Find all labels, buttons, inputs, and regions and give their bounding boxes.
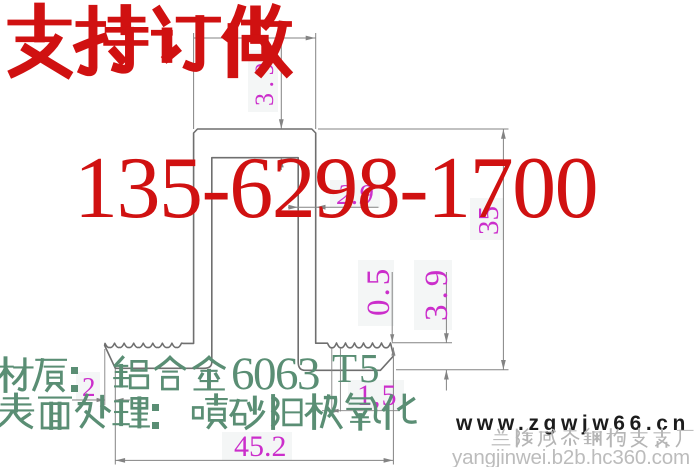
svg-text:T5: T5: [332, 345, 382, 391]
svg-text:2: 2: [82, 372, 96, 402]
svg-text:135-6298-1700: 135-6298-1700: [74, 140, 597, 237]
svg-text:45.2: 45.2: [234, 430, 287, 463]
svg-text:yangjinwei.b2b.hc360.com: yangjinwei.b2b.hc360.com: [452, 446, 690, 467]
svg-text:0.5: 0.5: [361, 266, 397, 316]
svg-text:www.zgwjw66.cn: www.zgwjw66.cn: [455, 412, 690, 435]
svg-text:3.9: 3.9: [419, 265, 455, 321]
svg-text:6063: 6063: [231, 348, 319, 400]
